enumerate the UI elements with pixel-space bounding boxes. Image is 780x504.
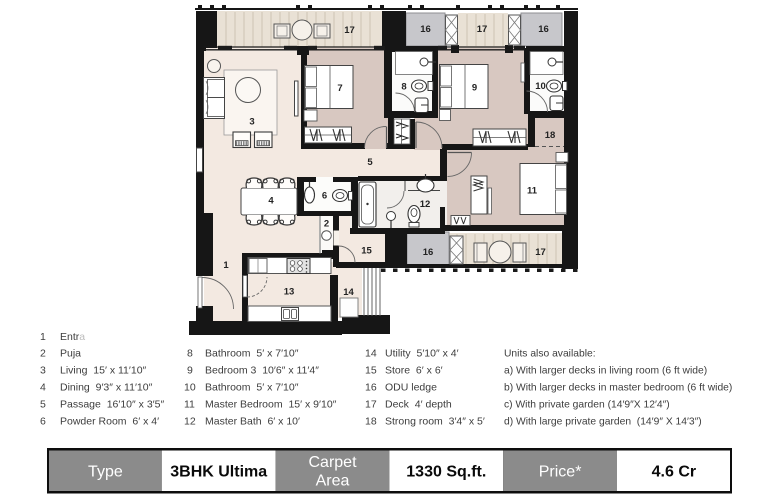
svg-text:Master Bath 6′ x 10′: Master Bath 6′ x 10′ xyxy=(205,416,300,428)
svg-text:15: 15 xyxy=(365,365,377,377)
svg-text:9: 9 xyxy=(472,83,477,94)
svg-text:13: 13 xyxy=(284,287,295,298)
svg-text:Deck 4′ depth: Deck 4′ depth xyxy=(385,399,452,411)
svg-text:2: 2 xyxy=(324,219,329,230)
svg-text:3: 3 xyxy=(40,365,46,377)
svg-text:Powder Room 6′ x 4′: Powder Room 6′ x 4′ xyxy=(60,416,159,428)
svg-text:d) With large private garden: d) With large private garden (14′9″ X 14… xyxy=(504,417,702,428)
svg-text:9: 9 xyxy=(187,365,193,377)
svg-text:Passage 16′10″ x 3′5″: Passage 16′10″ x 3′5″ xyxy=(60,399,164,411)
svg-text:5: 5 xyxy=(367,157,373,168)
svg-text:12: 12 xyxy=(184,416,196,428)
svg-text:7: 7 xyxy=(337,83,342,94)
svg-text:18: 18 xyxy=(365,416,377,428)
svg-text:14: 14 xyxy=(343,287,354,298)
svg-text:Type: Type xyxy=(88,464,123,481)
svg-text:16: 16 xyxy=(365,382,377,394)
svg-text:8: 8 xyxy=(401,82,406,93)
svg-text:Bathroom 5′ x 7′10″: Bathroom 5′ x 7′10″ xyxy=(205,348,299,360)
svg-text:16: 16 xyxy=(420,24,431,35)
svg-text:Entra: Entra xyxy=(60,331,85,343)
svg-text:17: 17 xyxy=(477,24,488,35)
svg-text:1: 1 xyxy=(40,331,46,343)
svg-text:17: 17 xyxy=(535,247,546,258)
svg-text:1330 Sq.ft.: 1330 Sq.ft. xyxy=(406,464,486,481)
svg-text:1: 1 xyxy=(223,260,229,271)
svg-text:Bedroom 3 10′6″ x 11′4″: Bedroom 3 10′6″ x 11′4″ xyxy=(205,365,319,377)
svg-text:16: 16 xyxy=(423,247,434,258)
svg-text:Price*: Price* xyxy=(539,464,582,481)
svg-text:3BHK Ultima: 3BHK Ultima xyxy=(170,464,267,481)
svg-text:6: 6 xyxy=(40,416,46,428)
svg-text:10: 10 xyxy=(184,382,196,394)
svg-text:16: 16 xyxy=(538,24,549,35)
svg-text:a) With larger decks in living: a) With larger decks in living room (6 f… xyxy=(504,366,707,377)
svg-text:4: 4 xyxy=(268,196,274,207)
svg-text:Dining 9′3″ x 11′10″: Dining 9′3″ x 11′10″ xyxy=(60,382,153,394)
svg-text:14: 14 xyxy=(365,348,377,360)
svg-text:4.6 Cr: 4.6 Cr xyxy=(652,464,696,481)
svg-text:15: 15 xyxy=(361,246,372,257)
svg-text:Carpet: Carpet xyxy=(308,454,357,471)
svg-text:11: 11 xyxy=(527,186,538,197)
svg-text:Puja: Puja xyxy=(60,348,81,360)
svg-text:3: 3 xyxy=(249,117,254,128)
svg-text:6: 6 xyxy=(322,191,327,202)
svg-text:4: 4 xyxy=(40,382,46,394)
svg-text:c) With private garden (14′9″X: c) With private garden (14′9″X 12′4″) xyxy=(504,400,670,411)
svg-text:5: 5 xyxy=(40,399,46,411)
svg-text:Living 15′ x 11′10″: Living 15′ x 11′10″ xyxy=(60,365,147,377)
svg-text:b) With larger decks in master: b) With larger decks in master bedroom (… xyxy=(504,383,732,394)
svg-text:Utility 5′10″ x 4′: Utility 5′10″ x 4′ xyxy=(385,348,459,360)
svg-text:Strong room 3′4″ x 5′: Strong room 3′4″ x 5′ xyxy=(385,416,485,428)
svg-text:8: 8 xyxy=(187,348,193,360)
svg-text:Area: Area xyxy=(316,473,350,490)
svg-text:Units also available:: Units also available: xyxy=(504,349,596,360)
svg-text:17: 17 xyxy=(344,25,355,36)
svg-text:17: 17 xyxy=(365,399,377,411)
svg-text:18: 18 xyxy=(545,130,556,141)
svg-text:Bathroom 5′ x 7′10″: Bathroom 5′ x 7′10″ xyxy=(205,382,299,394)
svg-text:ODU ledge: ODU ledge xyxy=(385,382,437,394)
svg-text:10: 10 xyxy=(535,81,546,92)
svg-text:12: 12 xyxy=(420,199,431,210)
svg-text:Store 6′ x 6′: Store 6′ x 6′ xyxy=(385,365,443,377)
svg-text:Master Bedroom 15′ x 9′10″: Master Bedroom 15′ x 9′10″ xyxy=(205,399,337,411)
svg-text:2: 2 xyxy=(40,348,46,360)
svg-text:11: 11 xyxy=(184,399,195,411)
